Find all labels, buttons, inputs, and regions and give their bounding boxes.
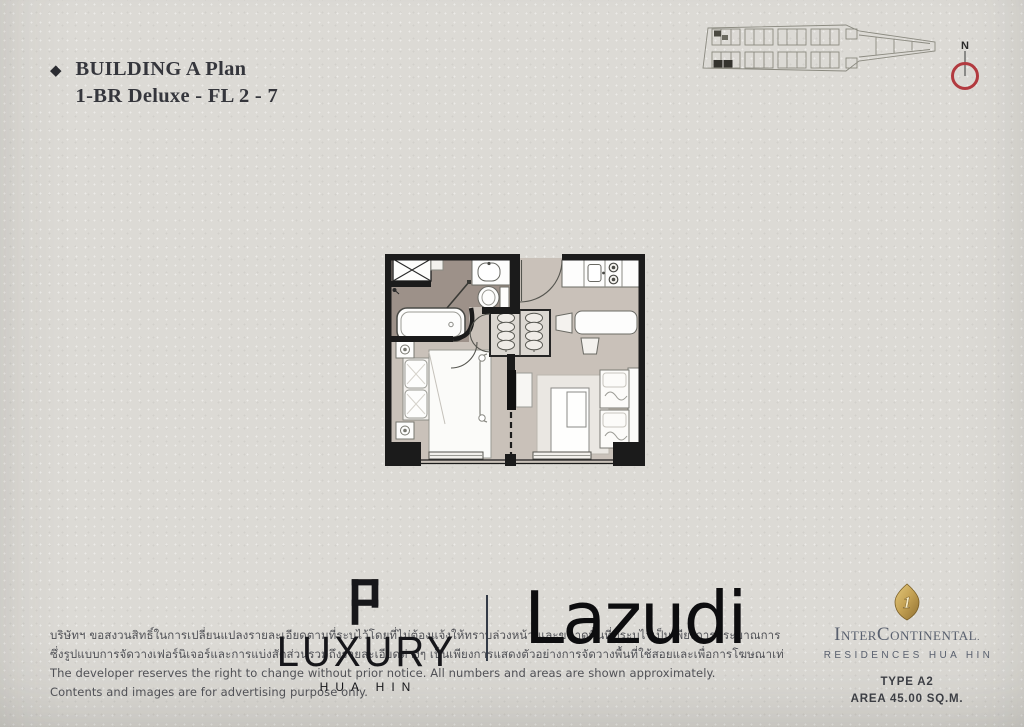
- luxury-monogram-icon: [346, 577, 384, 627]
- floor-plan-drawing: [385, 254, 645, 474]
- logo-divider: [486, 595, 488, 661]
- toilet: [478, 287, 509, 309]
- brochure-page: ◆ BUILDING A Plan 1-BR Deluxe - FL 2 - 7: [0, 0, 1024, 727]
- lazudi-logo: Lazudi: [524, 582, 745, 654]
- intercontinental-wordmark: InterContinental.: [793, 624, 1021, 646]
- page-title: BUILDING A Plan: [76, 56, 278, 83]
- building-key-plan: [696, 16, 948, 90]
- kitchen-counter: [562, 260, 639, 287]
- intercontinental-name: InterContinental: [834, 624, 977, 645]
- residences-label: RESIDENCES HUA HIN: [793, 650, 1021, 661]
- diamond-bullet-icon: ◆: [50, 56, 62, 111]
- unit-area-label: AREA 45.00 SQ.M.: [793, 693, 1021, 705]
- floor-plan: [385, 254, 645, 474]
- compass-north-label: N: [961, 40, 969, 52]
- intercontinental-logo-block: 1 InterContinental. RESIDENCES HUA HIN T…: [793, 583, 1021, 705]
- compass-north-indicator: N: [944, 38, 986, 94]
- page-title-block: BUILDING A Plan 1-BR Deluxe - FL 2 - 7: [76, 56, 278, 111]
- luxury-hua-hin-logo: LUXURY HUA HIN: [272, 577, 458, 694]
- building-key-plan-drawing: [696, 16, 948, 90]
- intercontinental-emblem-icon: 1: [893, 583, 921, 621]
- living-room-rug: [537, 375, 609, 454]
- page-header: ◆ BUILDING A Plan 1-BR Deluxe - FL 2 - 7: [50, 56, 278, 111]
- wardrobe: [490, 310, 550, 356]
- page-subtitle: 1-BR Deluxe - FL 2 - 7: [76, 83, 278, 110]
- compass-icon: N: [944, 38, 986, 94]
- kitchen-sink: [588, 265, 601, 282]
- luxury-location-label: HUA HIN: [272, 680, 458, 694]
- luxury-wordmark: LUXURY: [272, 629, 458, 677]
- tv-console: [516, 373, 532, 407]
- intercontinental-name-suffix: .: [977, 632, 980, 642]
- tv: [507, 370, 516, 410]
- unit-type-label: TYPE A2: [793, 676, 1021, 688]
- emblem-numeral: 1: [903, 593, 912, 612]
- highlighted-unit-cells: [714, 31, 733, 68]
- bathroom-sink: [472, 260, 510, 285]
